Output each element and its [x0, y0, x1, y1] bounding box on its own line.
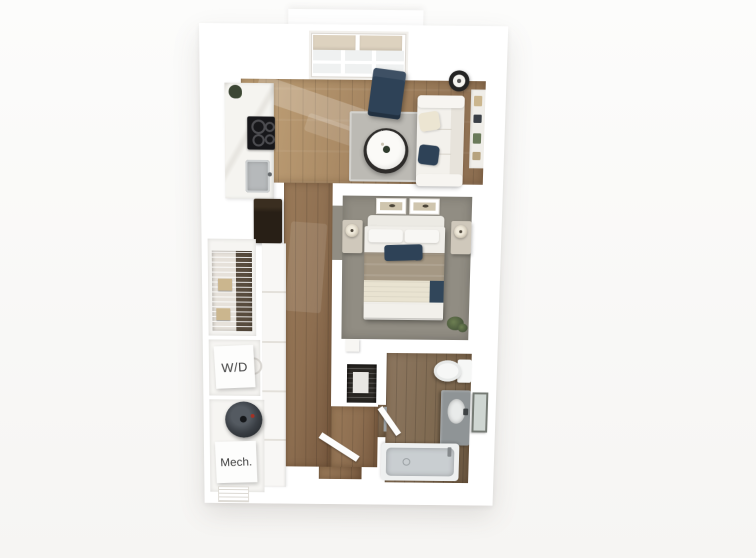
art-canvas — [380, 202, 402, 210]
wall-art-frame — [409, 198, 440, 215]
storage-box — [218, 279, 232, 291]
sofa-armrest — [416, 174, 463, 187]
bed-pillow — [405, 230, 439, 243]
cooktop — [247, 116, 275, 149]
sink-faucet — [268, 172, 272, 176]
burner-icon — [265, 134, 275, 144]
accent-chair — [367, 68, 406, 120]
washer-dryer-label: W/D — [214, 345, 256, 389]
bathroom-mirror — [471, 392, 488, 432]
hvac-vent — [218, 486, 249, 502]
refrigerator — [254, 199, 282, 244]
counter-plant — [229, 85, 242, 99]
roller-shade — [360, 35, 403, 50]
burner-icon — [265, 122, 275, 132]
wall-shelf — [469, 89, 486, 168]
throw-navy-edge — [429, 281, 443, 303]
table-decor — [383, 146, 390, 153]
roller-shade — [313, 35, 356, 50]
base-cabinets — [262, 243, 286, 487]
shelf-decor — [473, 115, 481, 123]
entry-threshold-floor — [319, 467, 362, 480]
sunlight-patch — [285, 221, 328, 313]
water-heater — [225, 401, 262, 437]
mechanical-label: Mech. — [215, 441, 258, 483]
table-lamp-left — [345, 224, 358, 237]
storage-box — [216, 308, 230, 320]
shelf-decor — [473, 133, 481, 143]
burner-icon — [252, 134, 264, 147]
bathtub-basin — [386, 448, 455, 477]
art-canvas — [413, 202, 435, 210]
wall-box — [345, 339, 359, 352]
bed-accent-pillow — [384, 244, 422, 261]
sofa-armrest — [417, 95, 464, 108]
sofa-backrest — [449, 96, 465, 187]
bed-pillow — [368, 229, 402, 242]
bedroom-doorway — [332, 206, 343, 260]
wall-art-frame — [376, 198, 407, 215]
throw-pillow-cream — [418, 110, 441, 132]
shelf-decor — [472, 152, 480, 160]
burner-icon — [251, 119, 265, 134]
apartment-floor-plan: W/D Mech. — [199, 8, 509, 508]
floor-plan-scene: W/D Mech. — [0, 0, 756, 558]
bathtub — [381, 443, 460, 481]
tub-faucet — [447, 447, 451, 456]
sofa — [416, 95, 465, 186]
vanity-faucet — [463, 409, 468, 416]
kitchen-sink — [245, 160, 269, 193]
shelf-decor — [474, 96, 483, 107]
bed-bench — [363, 304, 443, 319]
throw-pillow-navy — [417, 144, 440, 166]
linen-storage-box — [353, 372, 369, 393]
